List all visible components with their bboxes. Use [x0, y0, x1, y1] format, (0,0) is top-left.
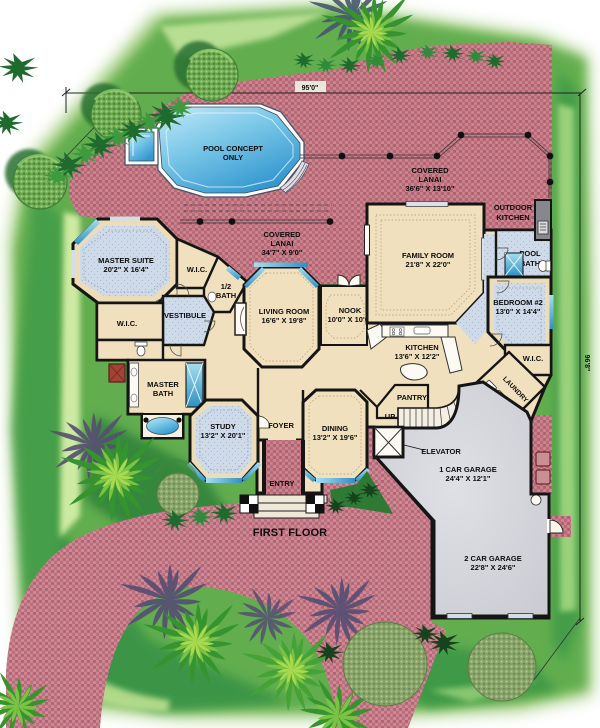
svg-text:DINING: DINING [322, 424, 348, 433]
svg-text:MASTER SUITE: MASTER SUITE [98, 256, 154, 265]
svg-text:NOOK: NOOK [339, 306, 362, 315]
svg-text:MASTER: MASTER [147, 380, 179, 389]
svg-text:36'6" X 13'10": 36'6" X 13'10" [405, 184, 454, 193]
svg-text:COVERED: COVERED [263, 230, 301, 239]
svg-text:FOYER: FOYER [268, 421, 294, 430]
svg-text:FAMILY ROOM: FAMILY ROOM [402, 251, 454, 260]
svg-text:BATH: BATH [216, 291, 236, 300]
svg-text:96'8": 96'8" [583, 355, 590, 372]
svg-text:BATH: BATH [153, 389, 173, 398]
svg-text:13'6" X 12'2": 13'6" X 12'2" [395, 352, 440, 361]
svg-text:PANTRY: PANTRY [397, 393, 427, 402]
svg-text:13'2" X 20'1": 13'2" X 20'1" [201, 431, 246, 440]
svg-text:W.I.C.: W.I.C. [187, 265, 207, 274]
svg-text:ENTRY: ENTRY [269, 479, 294, 488]
svg-text:2 CAR GARAGE: 2 CAR GARAGE [464, 554, 522, 563]
svg-text:ONLY: ONLY [223, 153, 243, 162]
svg-text:COVERED: COVERED [411, 166, 449, 175]
svg-text:BEDROOM #2: BEDROOM #2 [493, 298, 543, 307]
svg-text:LIVING ROOM: LIVING ROOM [259, 307, 309, 316]
svg-text:W.I.C.: W.I.C. [523, 354, 543, 363]
svg-text:KITCHEN: KITCHEN [496, 213, 529, 222]
svg-text:STUDY: STUDY [210, 422, 235, 431]
svg-text:W.I.C.: W.I.C. [117, 319, 137, 328]
svg-text:1/2: 1/2 [221, 282, 231, 291]
svg-text:24'4" X 12'1": 24'4" X 12'1" [446, 474, 491, 483]
svg-text:FIRST FLOOR: FIRST FLOOR [253, 527, 327, 539]
svg-text:LANAI: LANAI [419, 175, 442, 184]
svg-text:21'8" X 22'0": 21'8" X 22'0" [406, 260, 451, 269]
svg-text:13'2" X 19'6": 13'2" X 19'6" [313, 433, 358, 442]
svg-text:95'0": 95'0" [302, 85, 319, 92]
svg-text:ELEVATOR: ELEVATOR [421, 447, 461, 456]
svg-text:LANAI: LANAI [271, 239, 294, 248]
svg-text:POOL CONCEPT: POOL CONCEPT [203, 144, 263, 153]
svg-text:OUTDOOR: OUTDOOR [494, 203, 533, 212]
svg-text:22'8" X 24'6": 22'8" X 24'6" [471, 563, 516, 572]
svg-text:KITCHEN: KITCHEN [405, 343, 438, 352]
svg-text:UP: UP [385, 412, 395, 421]
svg-text:1 CAR GARAGE: 1 CAR GARAGE [439, 465, 497, 474]
svg-text:20'2" X 16'4": 20'2" X 16'4" [104, 265, 149, 274]
svg-text:VESTIBULE: VESTIBULE [164, 311, 206, 320]
svg-text:13'0" X 14'4": 13'0" X 14'4" [496, 307, 541, 316]
svg-text:34'7" X 9'0": 34'7" X 9'0" [262, 248, 303, 257]
svg-text:16'6" X 19'8": 16'6" X 19'8" [262, 316, 307, 325]
